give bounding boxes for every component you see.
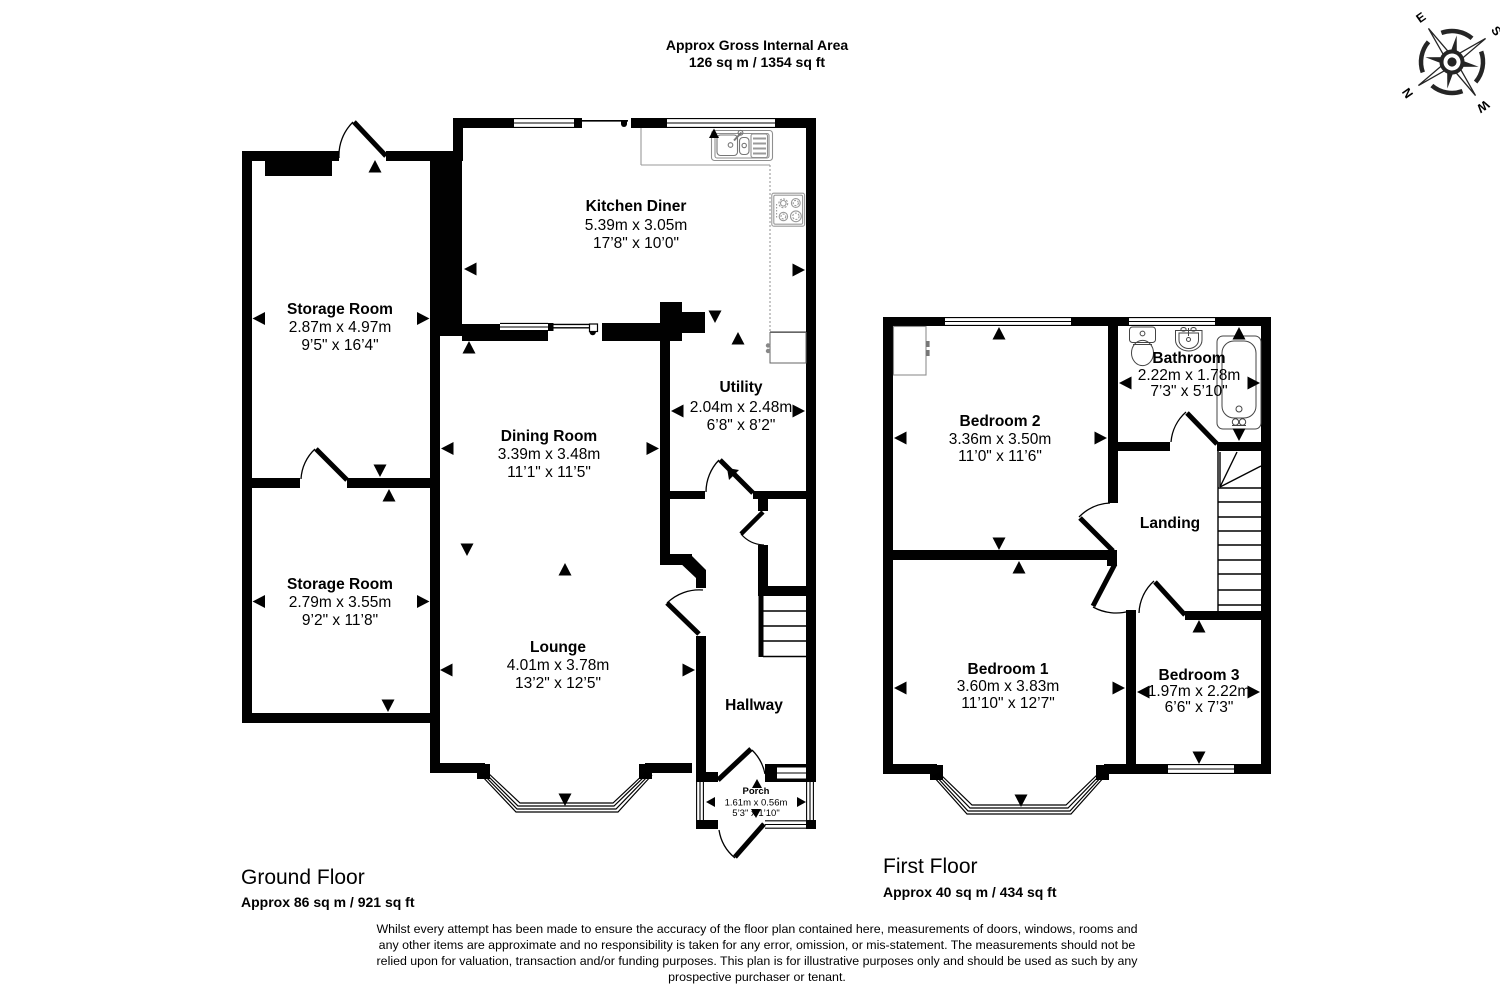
svg-text:4.01m x 3.78m: 4.01m x 3.78m xyxy=(507,657,610,674)
svg-text:2.87m x 4.97m: 2.87m x 4.97m xyxy=(289,319,392,336)
svg-text:1.97m x 2.22m: 1.97m x 2.22m xyxy=(1148,683,1251,700)
svg-text:relied upon for valuation, tra: relied upon for valuation, transaction a… xyxy=(377,954,1139,968)
svg-text:11’10" x 12’7": 11’10" x 12’7" xyxy=(961,695,1054,712)
svg-text:Bathroom: Bathroom xyxy=(1152,350,1225,367)
svg-text:2.04m x 2.48m: 2.04m x 2.48m xyxy=(690,399,793,416)
svg-text:Approx 86 sq m / 921 sq ft: Approx 86 sq m / 921 sq ft xyxy=(241,894,415,910)
svg-text:Utility: Utility xyxy=(719,379,762,396)
svg-text:Landing: Landing xyxy=(1140,515,1200,532)
svg-text:11’1" x 11’5": 11’1" x 11’5" xyxy=(507,464,591,481)
svg-text:2.79m x 3.55m: 2.79m x 3.55m xyxy=(289,594,392,611)
svg-text:any other items are approximat: any other items are approximate and no r… xyxy=(379,938,1136,952)
svg-text:2.22m x 1.78m: 2.22m x 1.78m xyxy=(1138,367,1241,384)
svg-text:Lounge: Lounge xyxy=(530,639,586,656)
svg-text:5’3" x 1’10": 5’3" x 1’10" xyxy=(732,808,779,819)
svg-text:Approx Gross Internal Area: Approx Gross Internal Area xyxy=(666,37,849,53)
svg-text:3.39m x 3.48m: 3.39m x 3.48m xyxy=(498,446,601,463)
svg-text:11’0" x 11’6": 11’0" x 11’6" xyxy=(958,448,1042,465)
svg-text:Approx 40 sq m / 434 sq ft: Approx 40 sq m / 434 sq ft xyxy=(883,884,1057,900)
svg-text:Kitchen Diner: Kitchen Diner xyxy=(586,198,687,215)
svg-text:Hallway: Hallway xyxy=(725,697,783,714)
svg-text:Bedroom 1: Bedroom 1 xyxy=(968,661,1049,678)
svg-text:Dining Room: Dining Room xyxy=(501,428,597,445)
svg-text:Whilst every attempt has been: Whilst every attempt has been made to en… xyxy=(376,922,1137,936)
svg-text:5.39m x 3.05m: 5.39m x 3.05m xyxy=(585,217,688,234)
svg-text:1.61m x 0.56m: 1.61m x 0.56m xyxy=(725,798,788,809)
svg-text:Ground Floor: Ground Floor xyxy=(241,866,365,889)
svg-text:3.36m x 3.50m: 3.36m x 3.50m xyxy=(949,431,1052,448)
svg-text:3.60m x 3.83m: 3.60m x 3.83m xyxy=(957,678,1060,695)
svg-text:prospective purchaser or tenan: prospective purchaser or tenant. xyxy=(668,970,846,984)
svg-text:6’6" x 7’3": 6’6" x 7’3" xyxy=(1165,699,1234,716)
svg-text:17’8" x 10’0": 17’8" x 10’0" xyxy=(593,235,679,252)
svg-text:Storage Room: Storage Room xyxy=(287,301,393,318)
svg-text:126 sq m / 1354 sq ft: 126 sq m / 1354 sq ft xyxy=(689,54,826,70)
svg-text:Storage Room: Storage Room xyxy=(287,576,393,593)
svg-text:9’5" x 16’4": 9’5" x 16’4" xyxy=(301,337,378,354)
svg-text:9’2" x 11’8": 9’2" x 11’8" xyxy=(302,612,378,629)
svg-text:Porch: Porch xyxy=(743,786,770,797)
svg-text:7’3" x 5’10": 7’3" x 5’10" xyxy=(1150,383,1227,400)
svg-text:Bedroom 2: Bedroom 2 xyxy=(960,413,1041,430)
svg-text:Bedroom 3: Bedroom 3 xyxy=(1159,667,1240,684)
svg-text:First Floor: First Floor xyxy=(883,855,978,878)
svg-text:6’8" x 8’2": 6’8" x 8’2" xyxy=(707,417,776,434)
svg-text:13’2" x 12’5": 13’2" x 12’5" xyxy=(515,675,601,692)
